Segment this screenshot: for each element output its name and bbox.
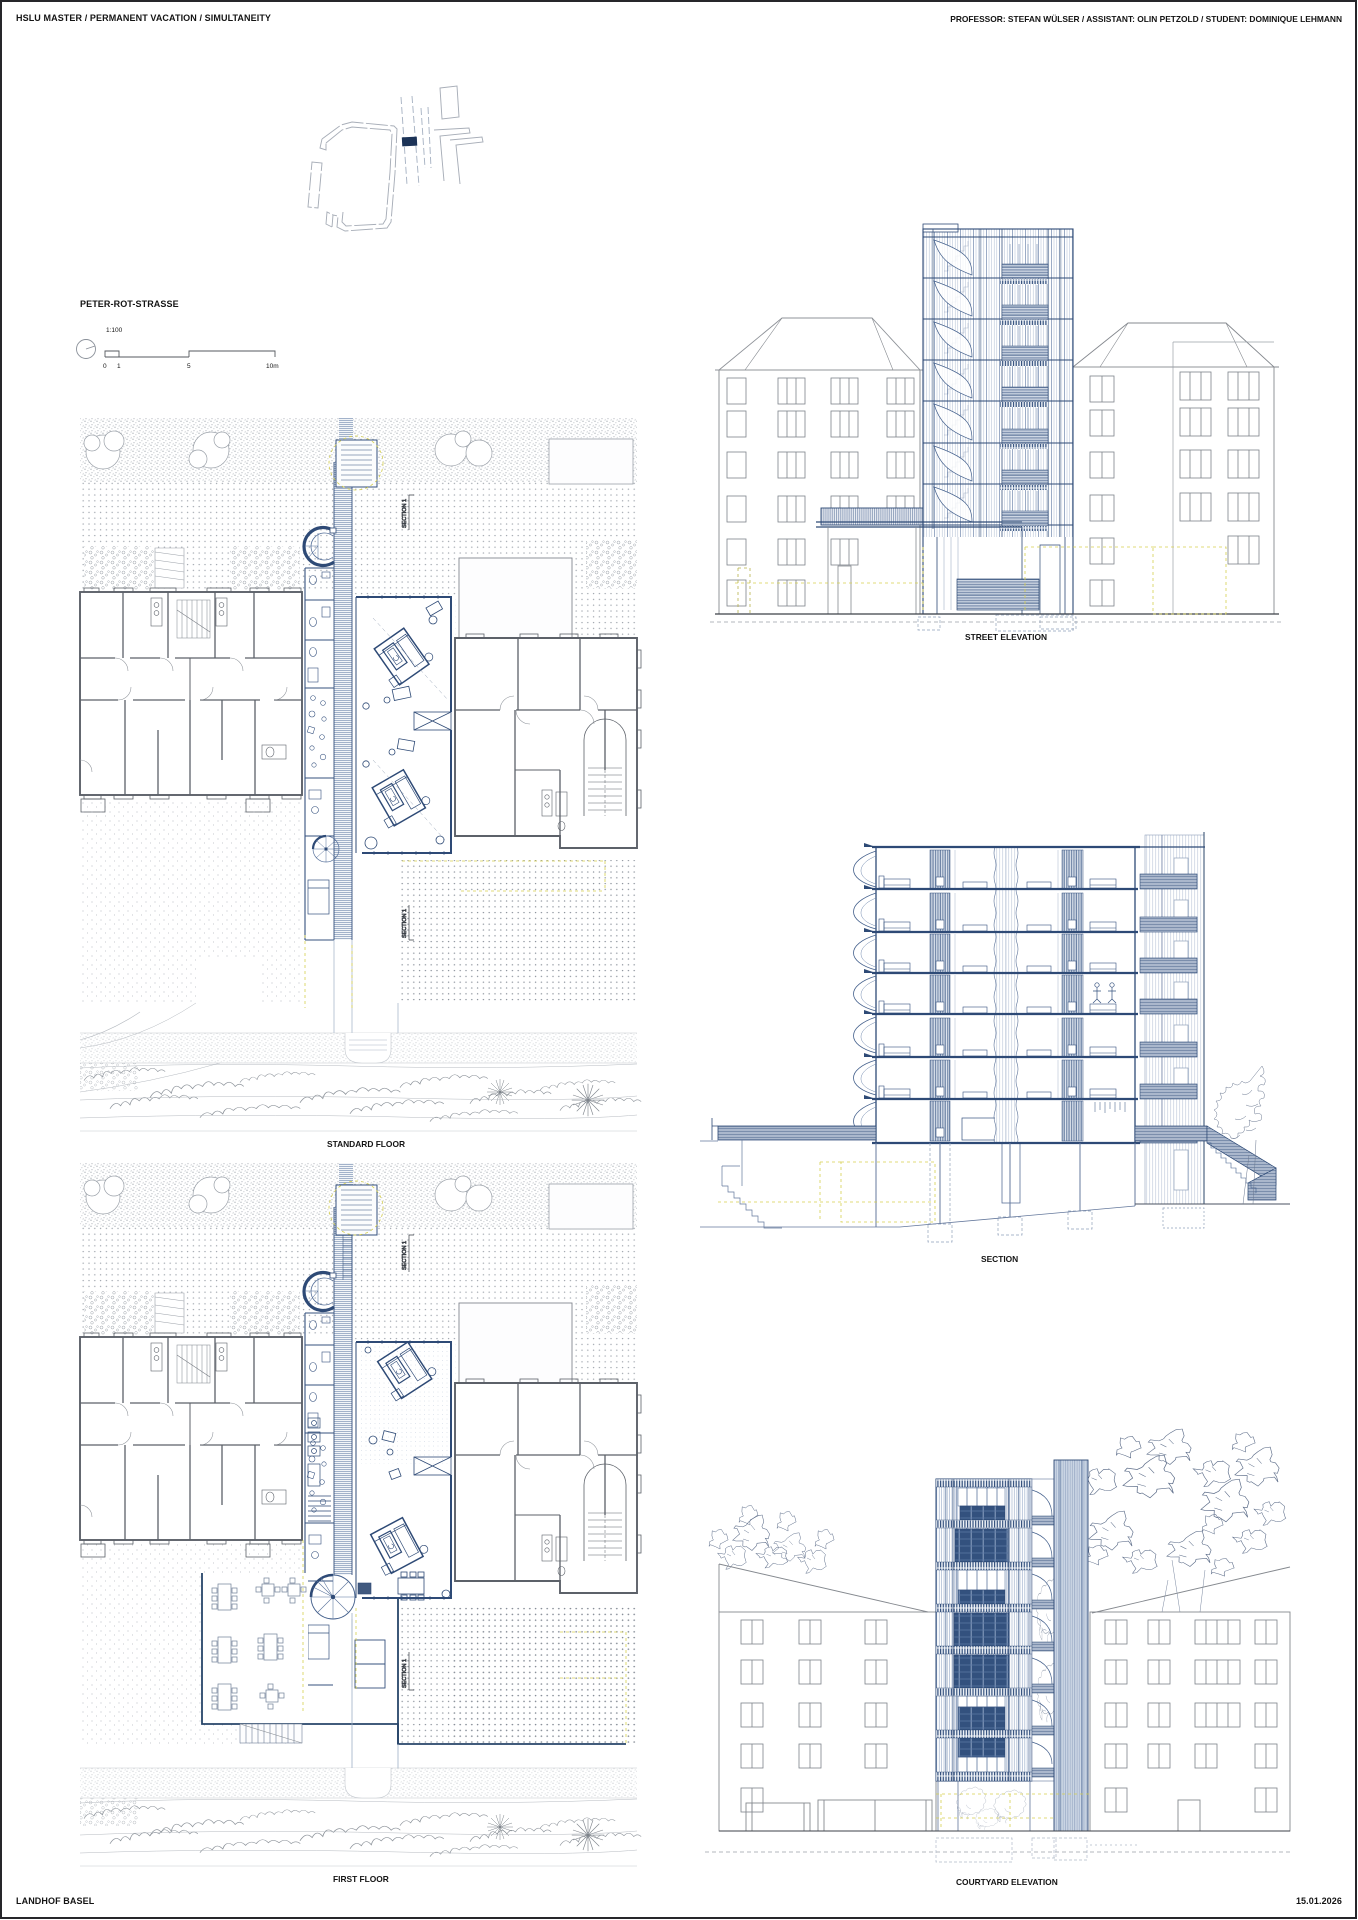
svg-text:1: 1 [117,363,121,370]
svg-text:SECTION 1: SECTION 1 [402,1241,408,1270]
svg-text:10m: 10m [266,363,279,370]
svg-text:SECTION 1: SECTION 1 [402,499,408,528]
svg-text:SECTION 1: SECTION 1 [402,909,408,938]
svg-text:0: 0 [103,363,107,370]
svg-text:5: 5 [187,363,191,370]
svg-text:SECTION 1: SECTION 1 [402,1659,408,1688]
